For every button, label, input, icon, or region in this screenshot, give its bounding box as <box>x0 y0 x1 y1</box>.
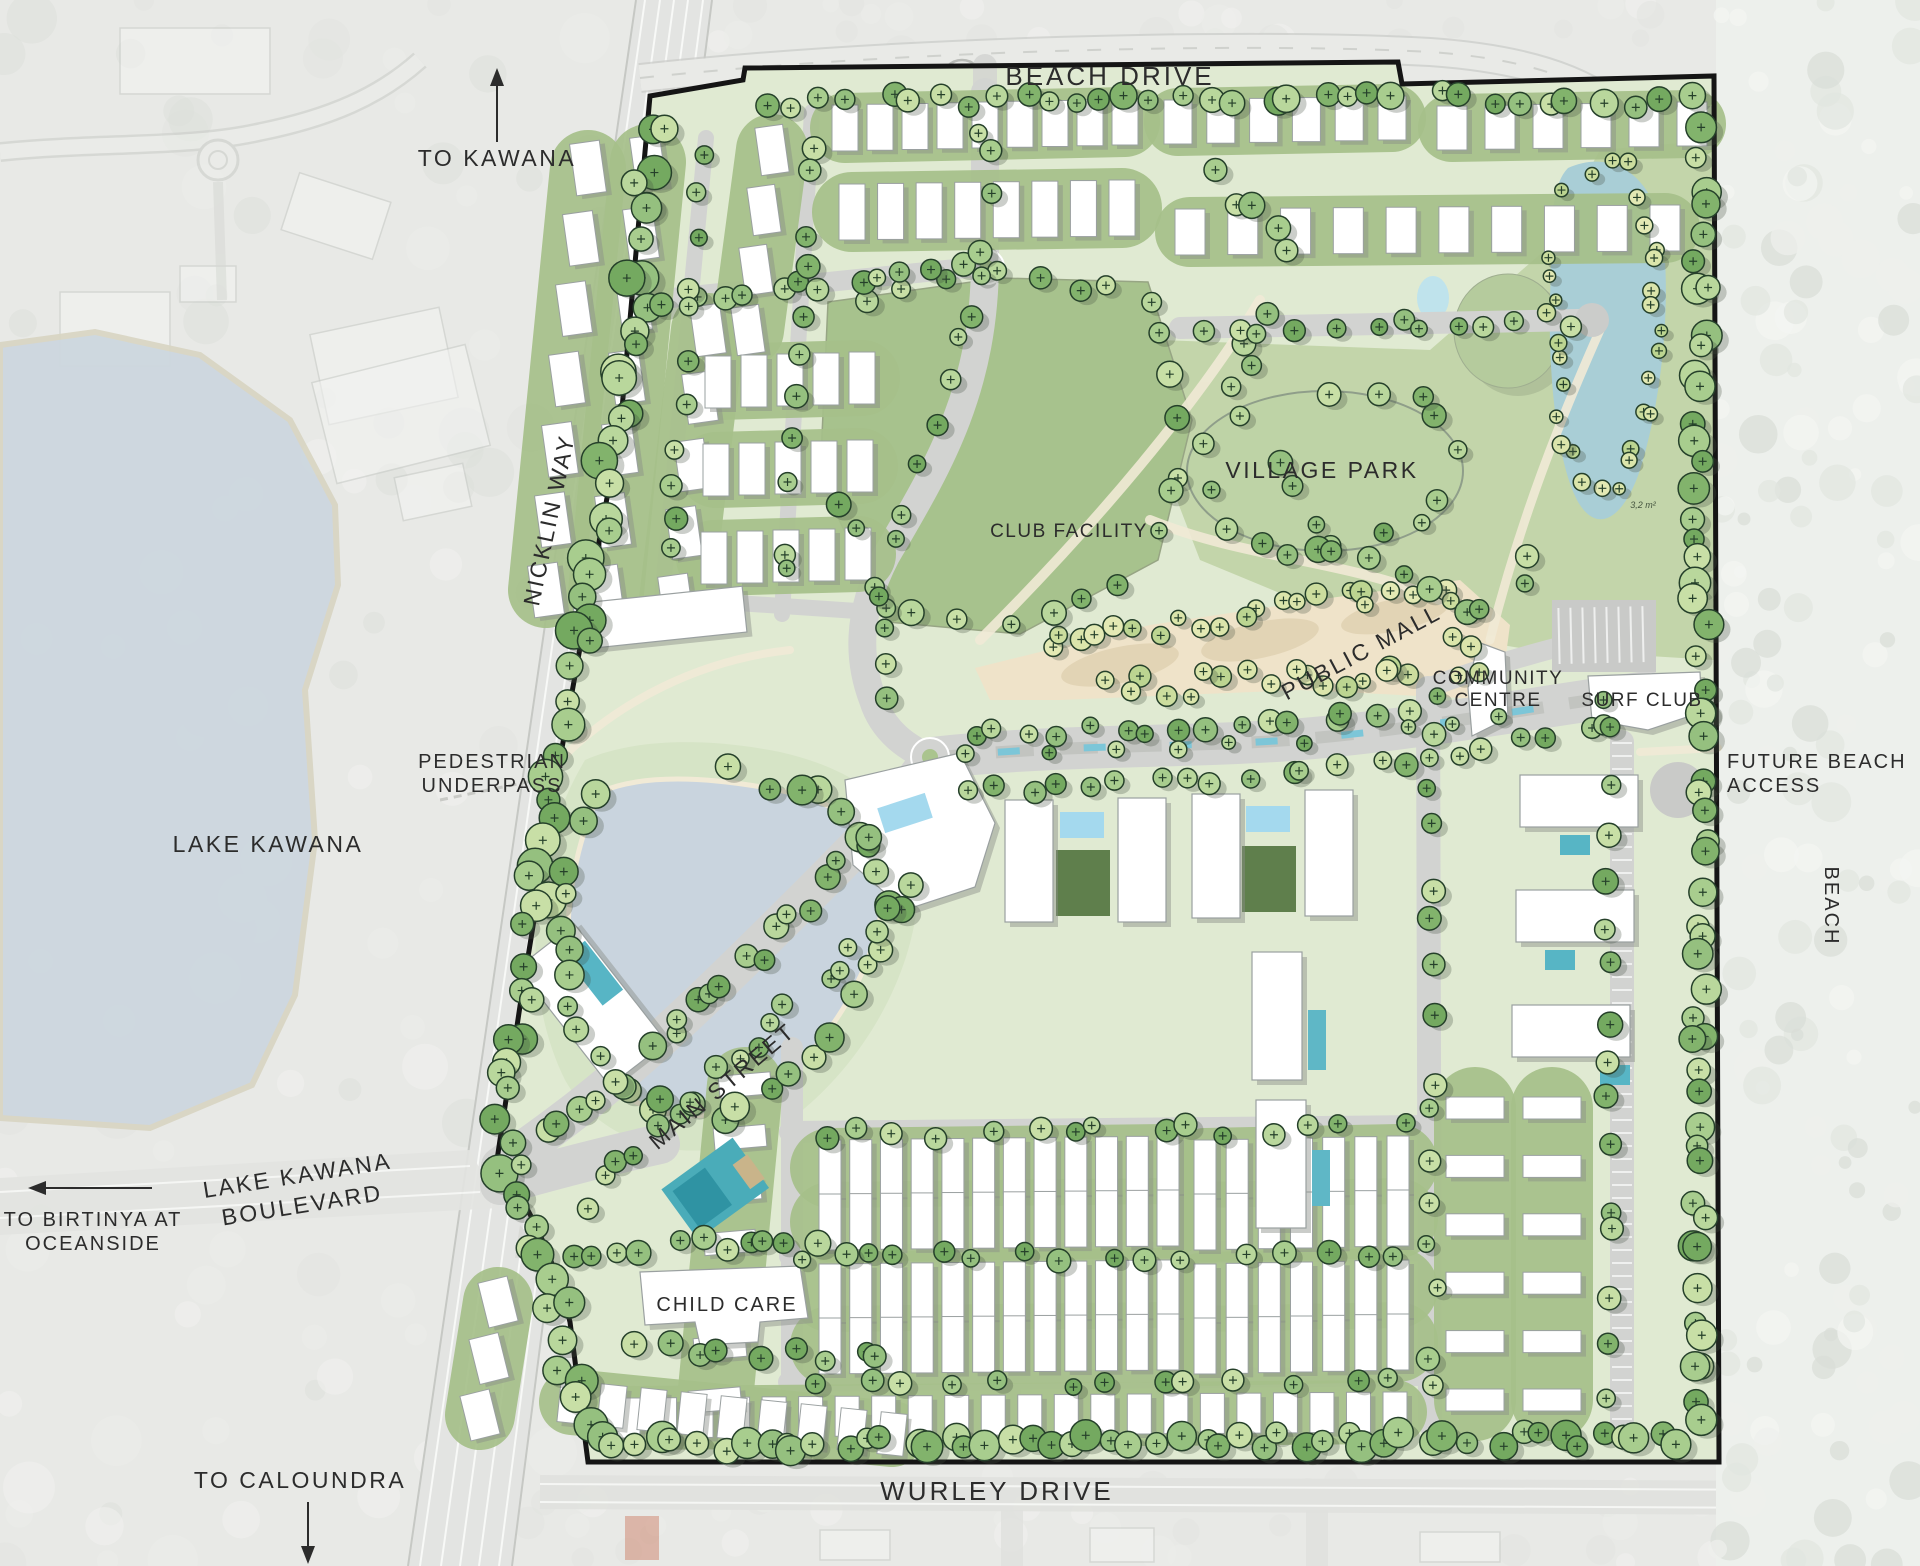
master-plan-canvas: BEACH DRIVE TO KAWANA NICKLIN WAY PEDEST… <box>0 0 1920 1566</box>
to-birtinya-label-2: OCEANSIDE <box>25 1233 161 1255</box>
to-caloundra-label: TO CALOUNDRA <box>194 1467 406 1493</box>
beach-label: BEACH <box>1820 867 1842 946</box>
village-park-label: VILLAGE PARK <box>1225 457 1418 483</box>
pedestrian-underpass-label-1: PEDESTRIAN <box>418 751 566 773</box>
to-birtinya-label-1: TO BIRTINYA AT <box>4 1209 183 1231</box>
future-beach-access-label-1: FUTURE BEACH <box>1727 751 1907 773</box>
community-centre-label-1: COMMUNITY <box>1433 668 1564 689</box>
site-plan-map: BEACH DRIVE TO KAWANA NICKLIN WAY PEDEST… <box>0 0 1920 1566</box>
wurley-drive-label: WURLEY DRIVE <box>880 1476 1113 1506</box>
community-centre-label-2: CENTRE <box>1454 690 1541 711</box>
lake-kawana-water <box>0 332 338 1128</box>
future-beach-access-label-2: ACCESS <box>1727 775 1821 797</box>
beach-drive-label: BEACH DRIVE <box>1005 61 1214 91</box>
to-kawana-label: TO KAWANA <box>418 145 576 171</box>
child-care-label: CHILD CARE <box>656 1294 797 1316</box>
lake-kawana-label: LAKE KAWANA <box>173 831 364 857</box>
surf-club-label: SURF CLUB <box>1581 690 1702 711</box>
pedestrian-underpass-label-2: UNDERPASS <box>422 775 563 797</box>
club-facility-label: CLUB FACILITY <box>990 521 1148 542</box>
area-annotation: 3,2 m² <box>1630 500 1657 510</box>
